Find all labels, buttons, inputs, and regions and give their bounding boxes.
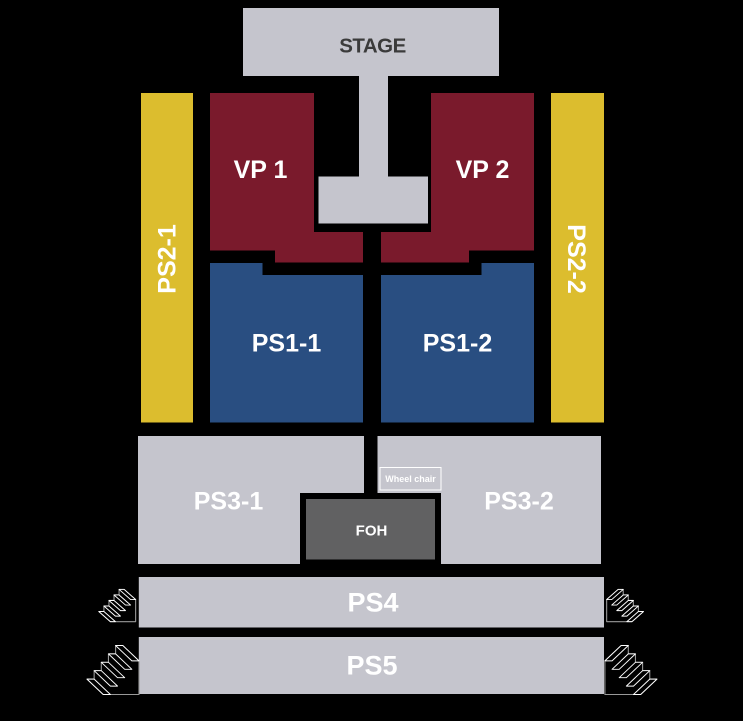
svg-text:VP 2: VP 2 (456, 156, 510, 184)
svg-text:VP 1: VP 1 (234, 156, 288, 184)
svg-text:PS3-1: PS3-1 (194, 488, 264, 516)
svg-text:PS1-1: PS1-1 (252, 330, 322, 358)
svg-text:PS2-2: PS2-2 (562, 224, 590, 293)
svg-text:PS2-1: PS2-1 (154, 224, 182, 294)
svg-text:PS4: PS4 (347, 588, 398, 618)
svg-text:STAGE: STAGE (339, 35, 406, 58)
svg-text:PS1-2: PS1-2 (423, 330, 492, 358)
svg-text:FOH: FOH (356, 523, 388, 540)
svg-text:Wheel chair: Wheel chair (385, 474, 436, 484)
svg-text:PS5: PS5 (346, 651, 397, 681)
svg-text:PS3-2: PS3-2 (484, 488, 553, 516)
